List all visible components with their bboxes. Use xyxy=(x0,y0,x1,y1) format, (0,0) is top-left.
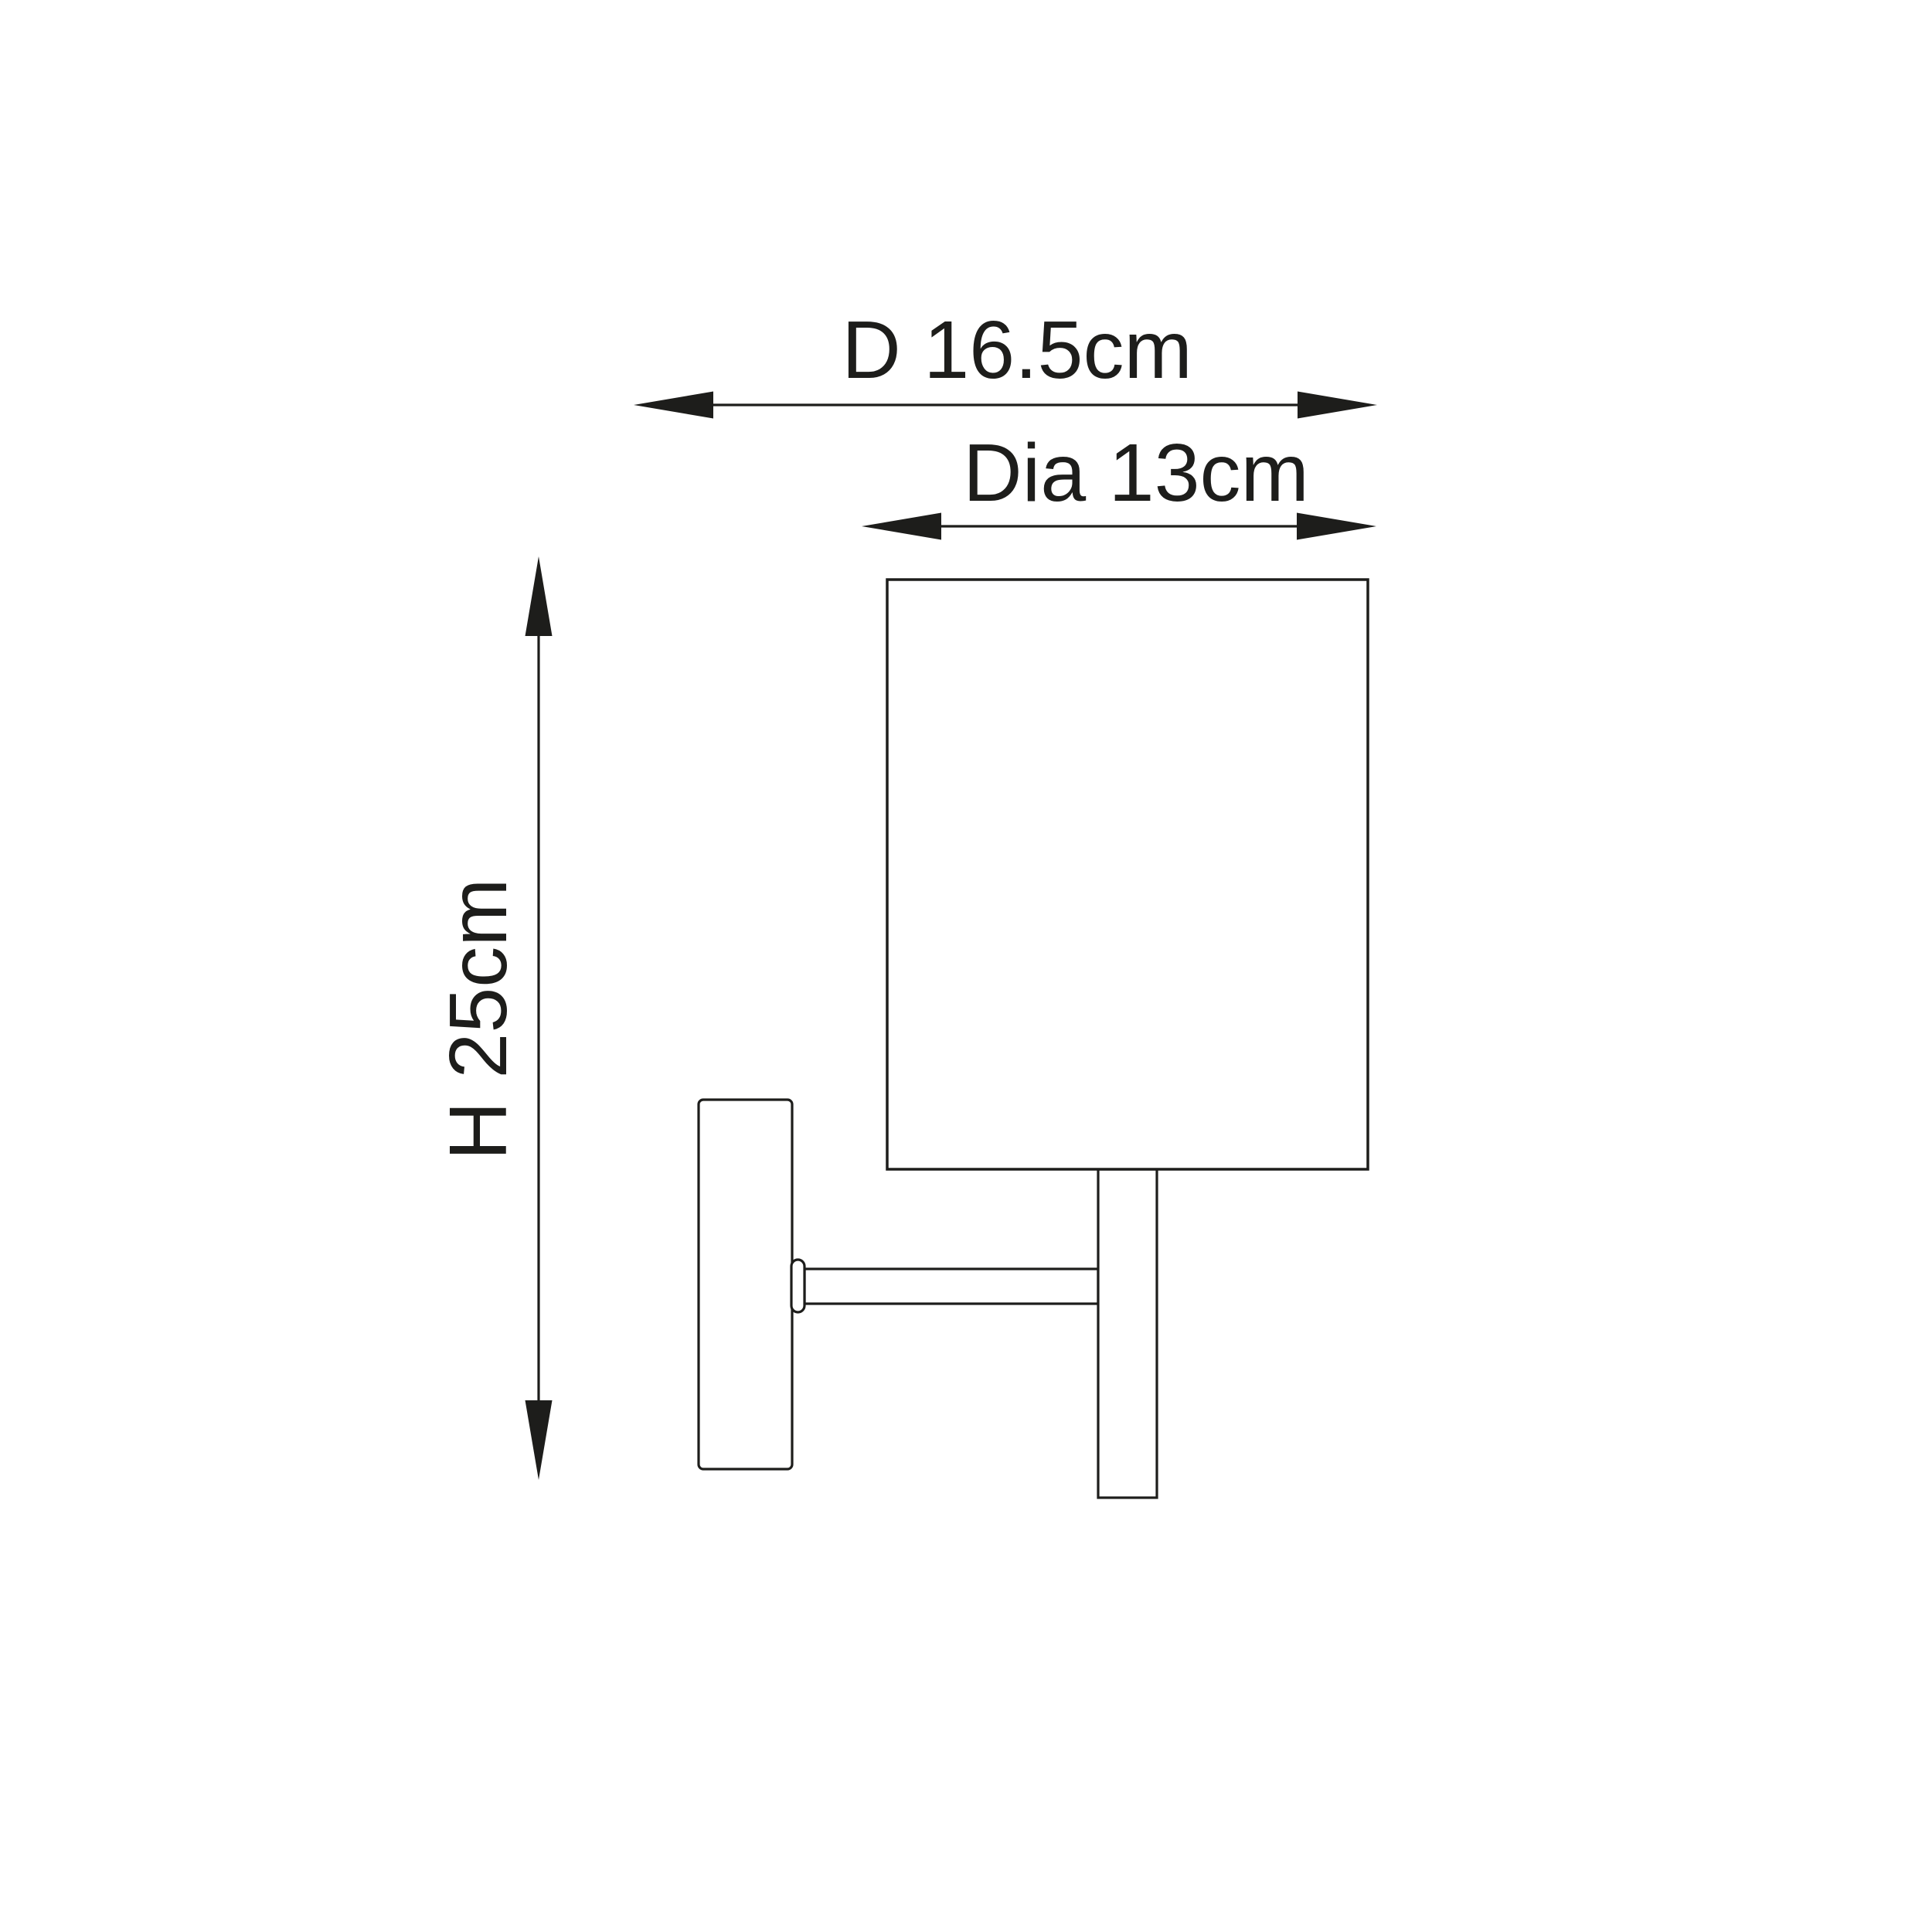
svg-text:H 25cm: H 25cm xyxy=(433,878,524,1160)
svg-text:D 16.5cm: D 16.5cm xyxy=(842,304,1192,396)
svg-text:Dia 13cm: Dia 13cm xyxy=(963,427,1309,519)
